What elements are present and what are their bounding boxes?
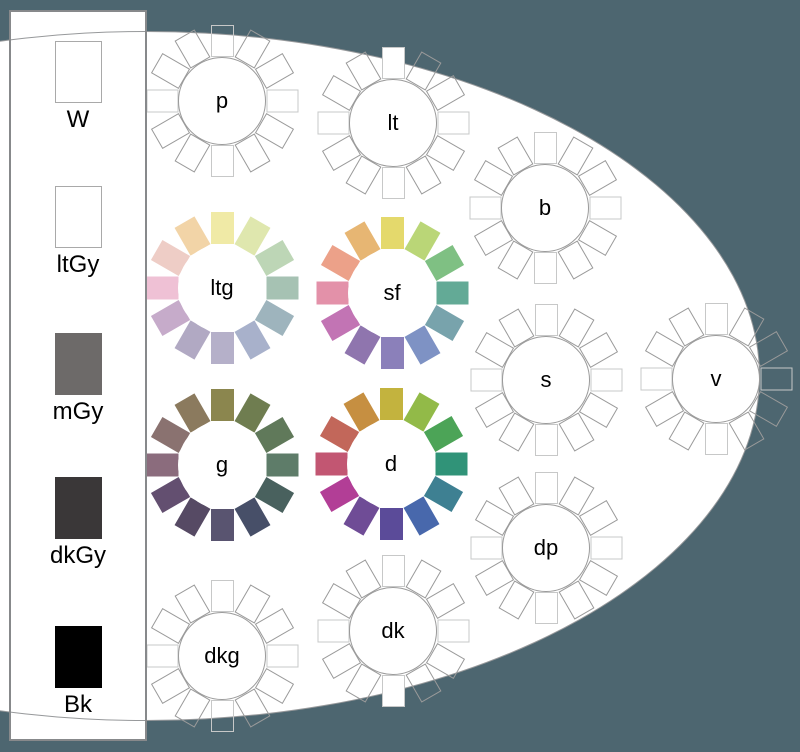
hue-swatch-b-9 bbox=[469, 197, 501, 220]
neutral-item-W: W bbox=[11, 41, 145, 133]
tone-label-g: g bbox=[216, 454, 228, 476]
hue-swatch-dk-0 bbox=[382, 555, 405, 587]
tone-label-dkg: dkg bbox=[204, 645, 239, 667]
hue-swatch-ltg-0 bbox=[211, 212, 234, 244]
neutral-item-mGy: mGy bbox=[11, 333, 145, 425]
wheel-hub-dp: dp bbox=[502, 504, 590, 592]
tone-label-p: p bbox=[216, 90, 228, 112]
wheel-hub-g: g bbox=[178, 421, 266, 509]
hue-swatch-d-6 bbox=[380, 508, 403, 540]
wheel-hub-lt: lt bbox=[349, 79, 437, 167]
hue-swatch-dp-9 bbox=[470, 537, 502, 560]
hue-swatch-dk-6 bbox=[382, 675, 405, 707]
neutral-item-ltGy: ltGy bbox=[11, 186, 145, 278]
hue-swatch-v-0 bbox=[705, 303, 728, 335]
tone-label-v: v bbox=[711, 368, 722, 390]
neutral-swatch-ltGy bbox=[55, 186, 102, 248]
wheel-hub-dk: dk bbox=[349, 587, 437, 675]
wheel-hub-v: v bbox=[672, 335, 760, 423]
neutral-swatch-mGy bbox=[55, 333, 102, 395]
hue-swatch-ltg-3 bbox=[266, 277, 298, 300]
hue-swatch-dp-3 bbox=[590, 537, 622, 560]
neutral-label-ltGy: ltGy bbox=[11, 252, 145, 278]
hue-swatch-dkg-3 bbox=[266, 645, 298, 668]
hue-swatch-lt-9 bbox=[317, 112, 349, 135]
neutral-label-mGy: mGy bbox=[11, 399, 145, 425]
tone-label-dp: dp bbox=[534, 537, 558, 559]
tone-label-dk: dk bbox=[381, 620, 404, 642]
hue-swatch-lt-6 bbox=[382, 167, 405, 199]
hue-swatch-b-6 bbox=[534, 252, 557, 284]
hue-swatch-s-3 bbox=[590, 369, 622, 392]
hue-swatch-ltg-6 bbox=[211, 332, 234, 364]
hue-swatch-v-9 bbox=[640, 368, 672, 391]
hue-swatch-ltg-9 bbox=[146, 277, 178, 300]
hue-swatch-d-3 bbox=[435, 453, 467, 476]
neutral-label-W: W bbox=[11, 107, 145, 133]
wheel-hub-d: d bbox=[347, 420, 435, 508]
hue-swatch-sf-0 bbox=[381, 217, 404, 249]
hue-swatch-g-9 bbox=[146, 454, 178, 477]
hue-swatch-s-6 bbox=[535, 424, 558, 456]
tone-label-ltg: ltg bbox=[210, 277, 233, 299]
hue-swatch-dp-0 bbox=[535, 472, 558, 504]
hue-swatch-sf-3 bbox=[436, 282, 468, 305]
wheel-hub-dkg: dkg bbox=[178, 612, 266, 700]
hue-swatch-lt-0 bbox=[382, 47, 405, 79]
neutral-label-dkGy: dkGy bbox=[11, 543, 145, 569]
neutral-swatch-W bbox=[55, 41, 102, 103]
hue-swatch-dp-6 bbox=[535, 592, 558, 624]
hue-swatch-dkg-9 bbox=[146, 645, 178, 668]
hue-swatch-d-0 bbox=[380, 388, 403, 420]
wheel-hub-s: s bbox=[502, 336, 590, 424]
wheel-hub-p: p bbox=[178, 57, 266, 145]
hue-swatch-sf-6 bbox=[381, 337, 404, 369]
hue-swatch-s-9 bbox=[470, 369, 502, 392]
tone-label-s: s bbox=[541, 369, 552, 391]
hue-swatch-p-3 bbox=[266, 90, 298, 113]
hue-swatch-s-0 bbox=[535, 304, 558, 336]
hue-swatch-dkg-0 bbox=[211, 580, 234, 612]
hue-swatch-p-0 bbox=[211, 25, 234, 57]
wheel-hub-ltg: ltg bbox=[178, 244, 266, 332]
hue-swatch-dk-3 bbox=[437, 620, 469, 643]
tone-label-sf: sf bbox=[383, 282, 400, 304]
hue-swatch-p-9 bbox=[146, 90, 178, 113]
neutral-item-dkGy: dkGy bbox=[11, 477, 145, 569]
tone-label-lt: lt bbox=[388, 112, 399, 134]
tone-label-b: b bbox=[539, 197, 551, 219]
neutral-item-Bk: Bk bbox=[11, 626, 145, 718]
wheel-hub-b: b bbox=[501, 164, 589, 252]
tone-label-d: d bbox=[385, 453, 397, 475]
tone-map-canvas: pltbltgsfsvgddpdkdkg WltGymGydkGyBk bbox=[0, 0, 800, 752]
wheel-hub-sf: sf bbox=[348, 249, 436, 337]
neutral-scale-panel: WltGymGydkGyBk bbox=[9, 10, 147, 741]
neutral-label-Bk: Bk bbox=[11, 692, 145, 718]
hue-swatch-sf-9 bbox=[316, 282, 348, 305]
hue-swatch-lt-3 bbox=[437, 112, 469, 135]
hue-swatch-p-6 bbox=[211, 145, 234, 177]
hue-swatch-dkg-6 bbox=[211, 700, 234, 732]
hue-swatch-d-9 bbox=[315, 453, 347, 476]
hue-swatch-v-3 bbox=[760, 368, 792, 391]
hue-swatch-g-0 bbox=[211, 389, 234, 421]
hue-swatch-v-6 bbox=[705, 423, 728, 455]
neutral-swatch-dkGy bbox=[55, 477, 102, 539]
hue-swatch-dk-9 bbox=[317, 620, 349, 643]
hue-swatch-g-3 bbox=[266, 454, 298, 477]
hue-swatch-b-3 bbox=[589, 197, 621, 220]
hue-swatch-b-0 bbox=[534, 132, 557, 164]
hue-swatch-g-6 bbox=[211, 509, 234, 541]
neutral-swatch-Bk bbox=[55, 626, 102, 688]
